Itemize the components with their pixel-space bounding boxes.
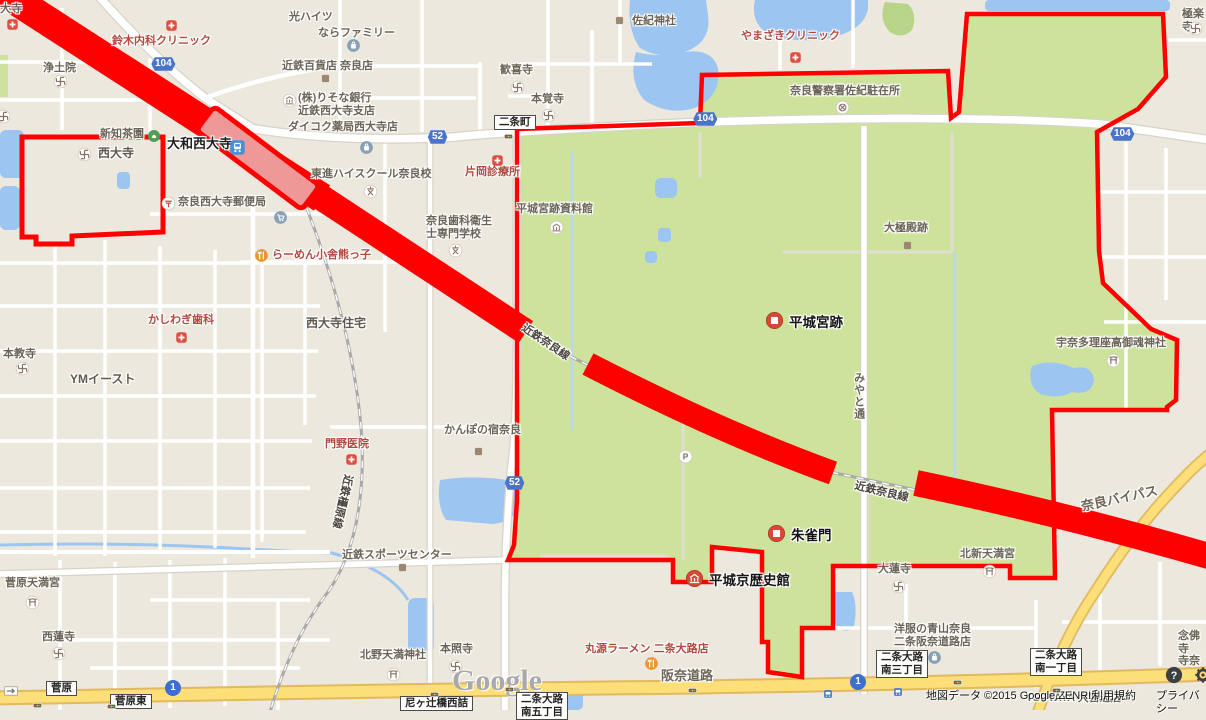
map-canvas[interactable]: P ? bbox=[0, 0, 1206, 710]
map-base-layer: P ? bbox=[0, 0, 1206, 710]
